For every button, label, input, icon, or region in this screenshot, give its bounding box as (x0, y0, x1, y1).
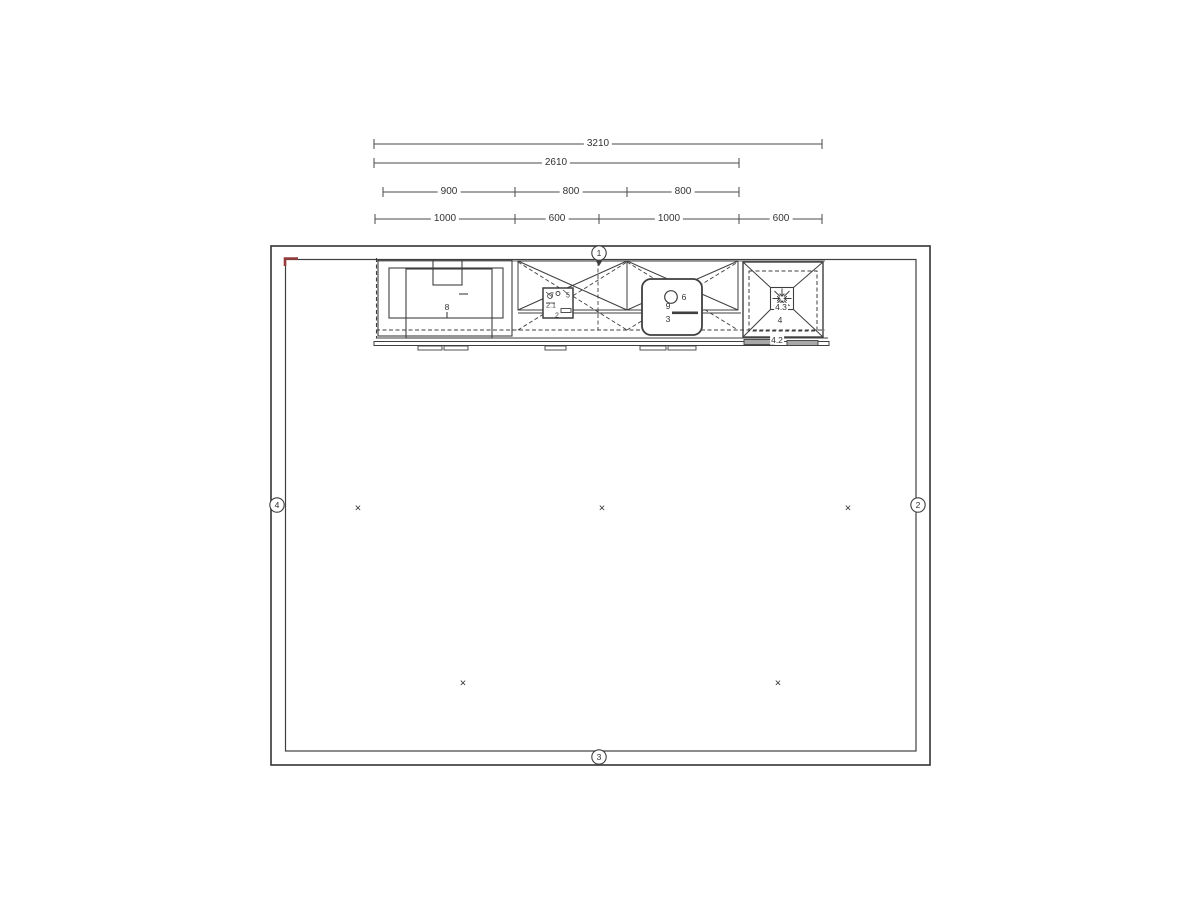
unit-label-2-1: 2.1 (546, 303, 556, 310)
unit-label-4-3: 4.3 (774, 303, 788, 312)
dim-label-800b: 800 (672, 187, 695, 197)
dim-label-1000b: 1000 (655, 214, 683, 224)
sink (642, 279, 702, 335)
ceiling-light-symbol: × (460, 679, 466, 690)
hood-cabinet (743, 262, 823, 337)
unit-label-7: 7 (550, 293, 554, 300)
wall-accent-mark (285, 259, 298, 267)
dim-label-600a: 600 (546, 214, 569, 224)
unit-label-4-2: 4.2 (770, 336, 784, 345)
ceiling-light-symbol: × (845, 504, 851, 515)
floorplan-linework (0, 0, 1200, 900)
wall-marker-4-label: 4 (275, 501, 280, 510)
ceiling-light-symbol: × (355, 504, 361, 515)
wall-marker-1-label: 1 (597, 249, 602, 258)
dim-label-1000a: 1000 (431, 214, 459, 224)
wall-marker-circles (270, 246, 925, 764)
dim-label-900: 900 (438, 187, 461, 197)
dim-label-2610: 2610 (542, 158, 570, 168)
unit-label-6: 6 (682, 293, 687, 302)
unit-label-2: 2 (555, 313, 559, 320)
floorplan-canvas: 3210 2610 900 800 800 1000 600 1000 600 … (0, 0, 1200, 900)
tall-cabinet (377, 258, 513, 338)
ceiling-light-symbol: × (599, 504, 605, 515)
wall-marker-2-label: 2 (916, 501, 921, 510)
wall-marker-3-label: 3 (597, 753, 602, 762)
unit-label-5: 5 (566, 293, 570, 300)
dim-label-800a: 800 (560, 187, 583, 197)
unit-label-3: 3 (666, 315, 671, 324)
dimension-lines (374, 139, 822, 224)
unit-label-8: 8 (445, 303, 450, 312)
dim-label-600b: 600 (770, 214, 793, 224)
dim-label-3210: 3210 (584, 139, 612, 149)
unit-label-9: 9 (666, 302, 671, 311)
unit-label-4: 4 (778, 316, 783, 325)
ceiling-light-symbol: × (775, 679, 781, 690)
